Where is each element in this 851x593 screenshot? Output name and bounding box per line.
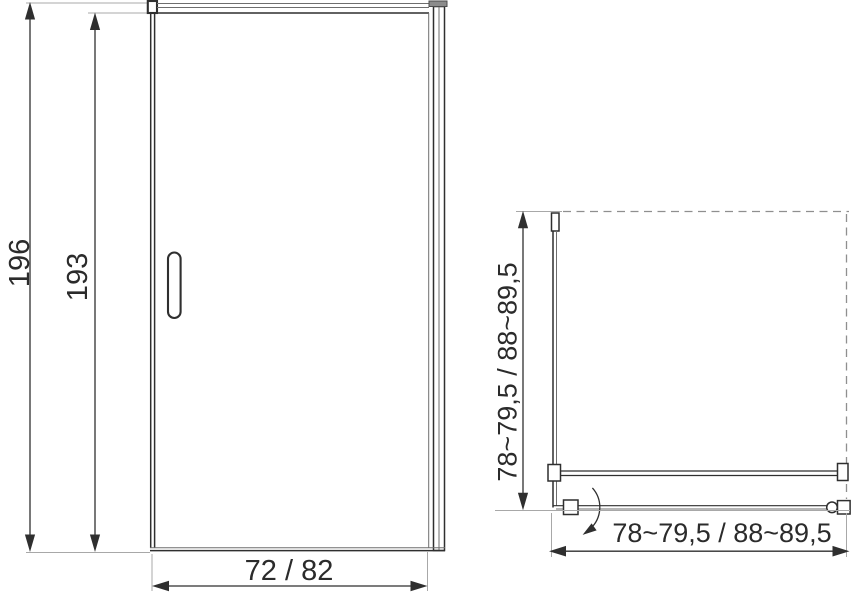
- door-handle-knob-plan: [827, 502, 838, 513]
- wall-profile-top-cap: [429, 1, 447, 7]
- arrowhead-left-width: [152, 581, 169, 592]
- door-end-profile-plan: [838, 501, 851, 514]
- arrowhead-right-width: [411, 581, 428, 592]
- top-rail-left-cap: [148, 1, 157, 13]
- arrowhead-down-depth: [518, 493, 528, 511]
- door-swing-arc: [590, 488, 600, 529]
- support-bar-right-bracket: [838, 464, 849, 481]
- arrowhead-down-196: [25, 535, 35, 553]
- shower-door-technical-drawing: 196 193 72 / 82: [0, 0, 851, 593]
- dimension-label-total-height: 196: [4, 239, 36, 287]
- arrowhead-up-depth: [518, 211, 528, 229]
- front-view: 196 193 72 / 82: [4, 1, 447, 591]
- dimension-label-door-width: 72 / 82: [245, 555, 334, 587]
- door-hinge-plan: [564, 500, 579, 515]
- arrowhead-up-196: [25, 2, 35, 20]
- wall-profile-plan: [552, 213, 560, 231]
- arrowhead-up-193: [90, 13, 100, 31]
- arrowhead-down-193: [90, 535, 100, 553]
- dimension-label-plan-width: 78~79,5 / 88~89,5: [612, 518, 831, 548]
- door-assembly-front: [148, 1, 447, 551]
- top-view: 78~79,5 / 88~89,5 78~79,5 / 88~89,5: [493, 211, 851, 557]
- drawing-canvas: 196 193 72 / 82: [0, 0, 851, 593]
- door-handle: [168, 253, 181, 319]
- dimension-label-depth: 78~79,5 / 88~89,5: [493, 262, 523, 481]
- support-bar-left-bracket: [548, 465, 561, 482]
- dimension-label-door-height: 193: [62, 253, 94, 301]
